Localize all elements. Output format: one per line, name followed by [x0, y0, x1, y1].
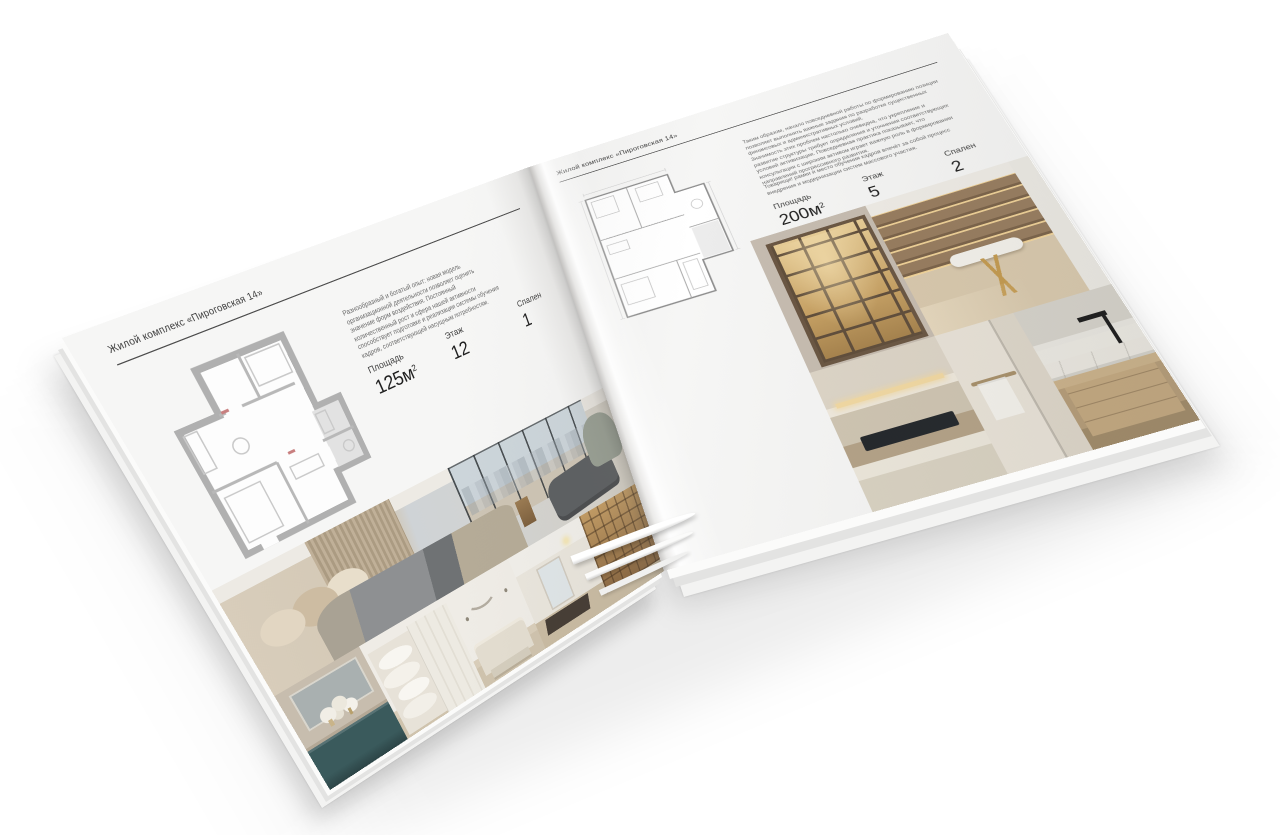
brochure-mockup-scene: Жилой комплекс «Пироговская 14» — [0, 0, 1280, 835]
